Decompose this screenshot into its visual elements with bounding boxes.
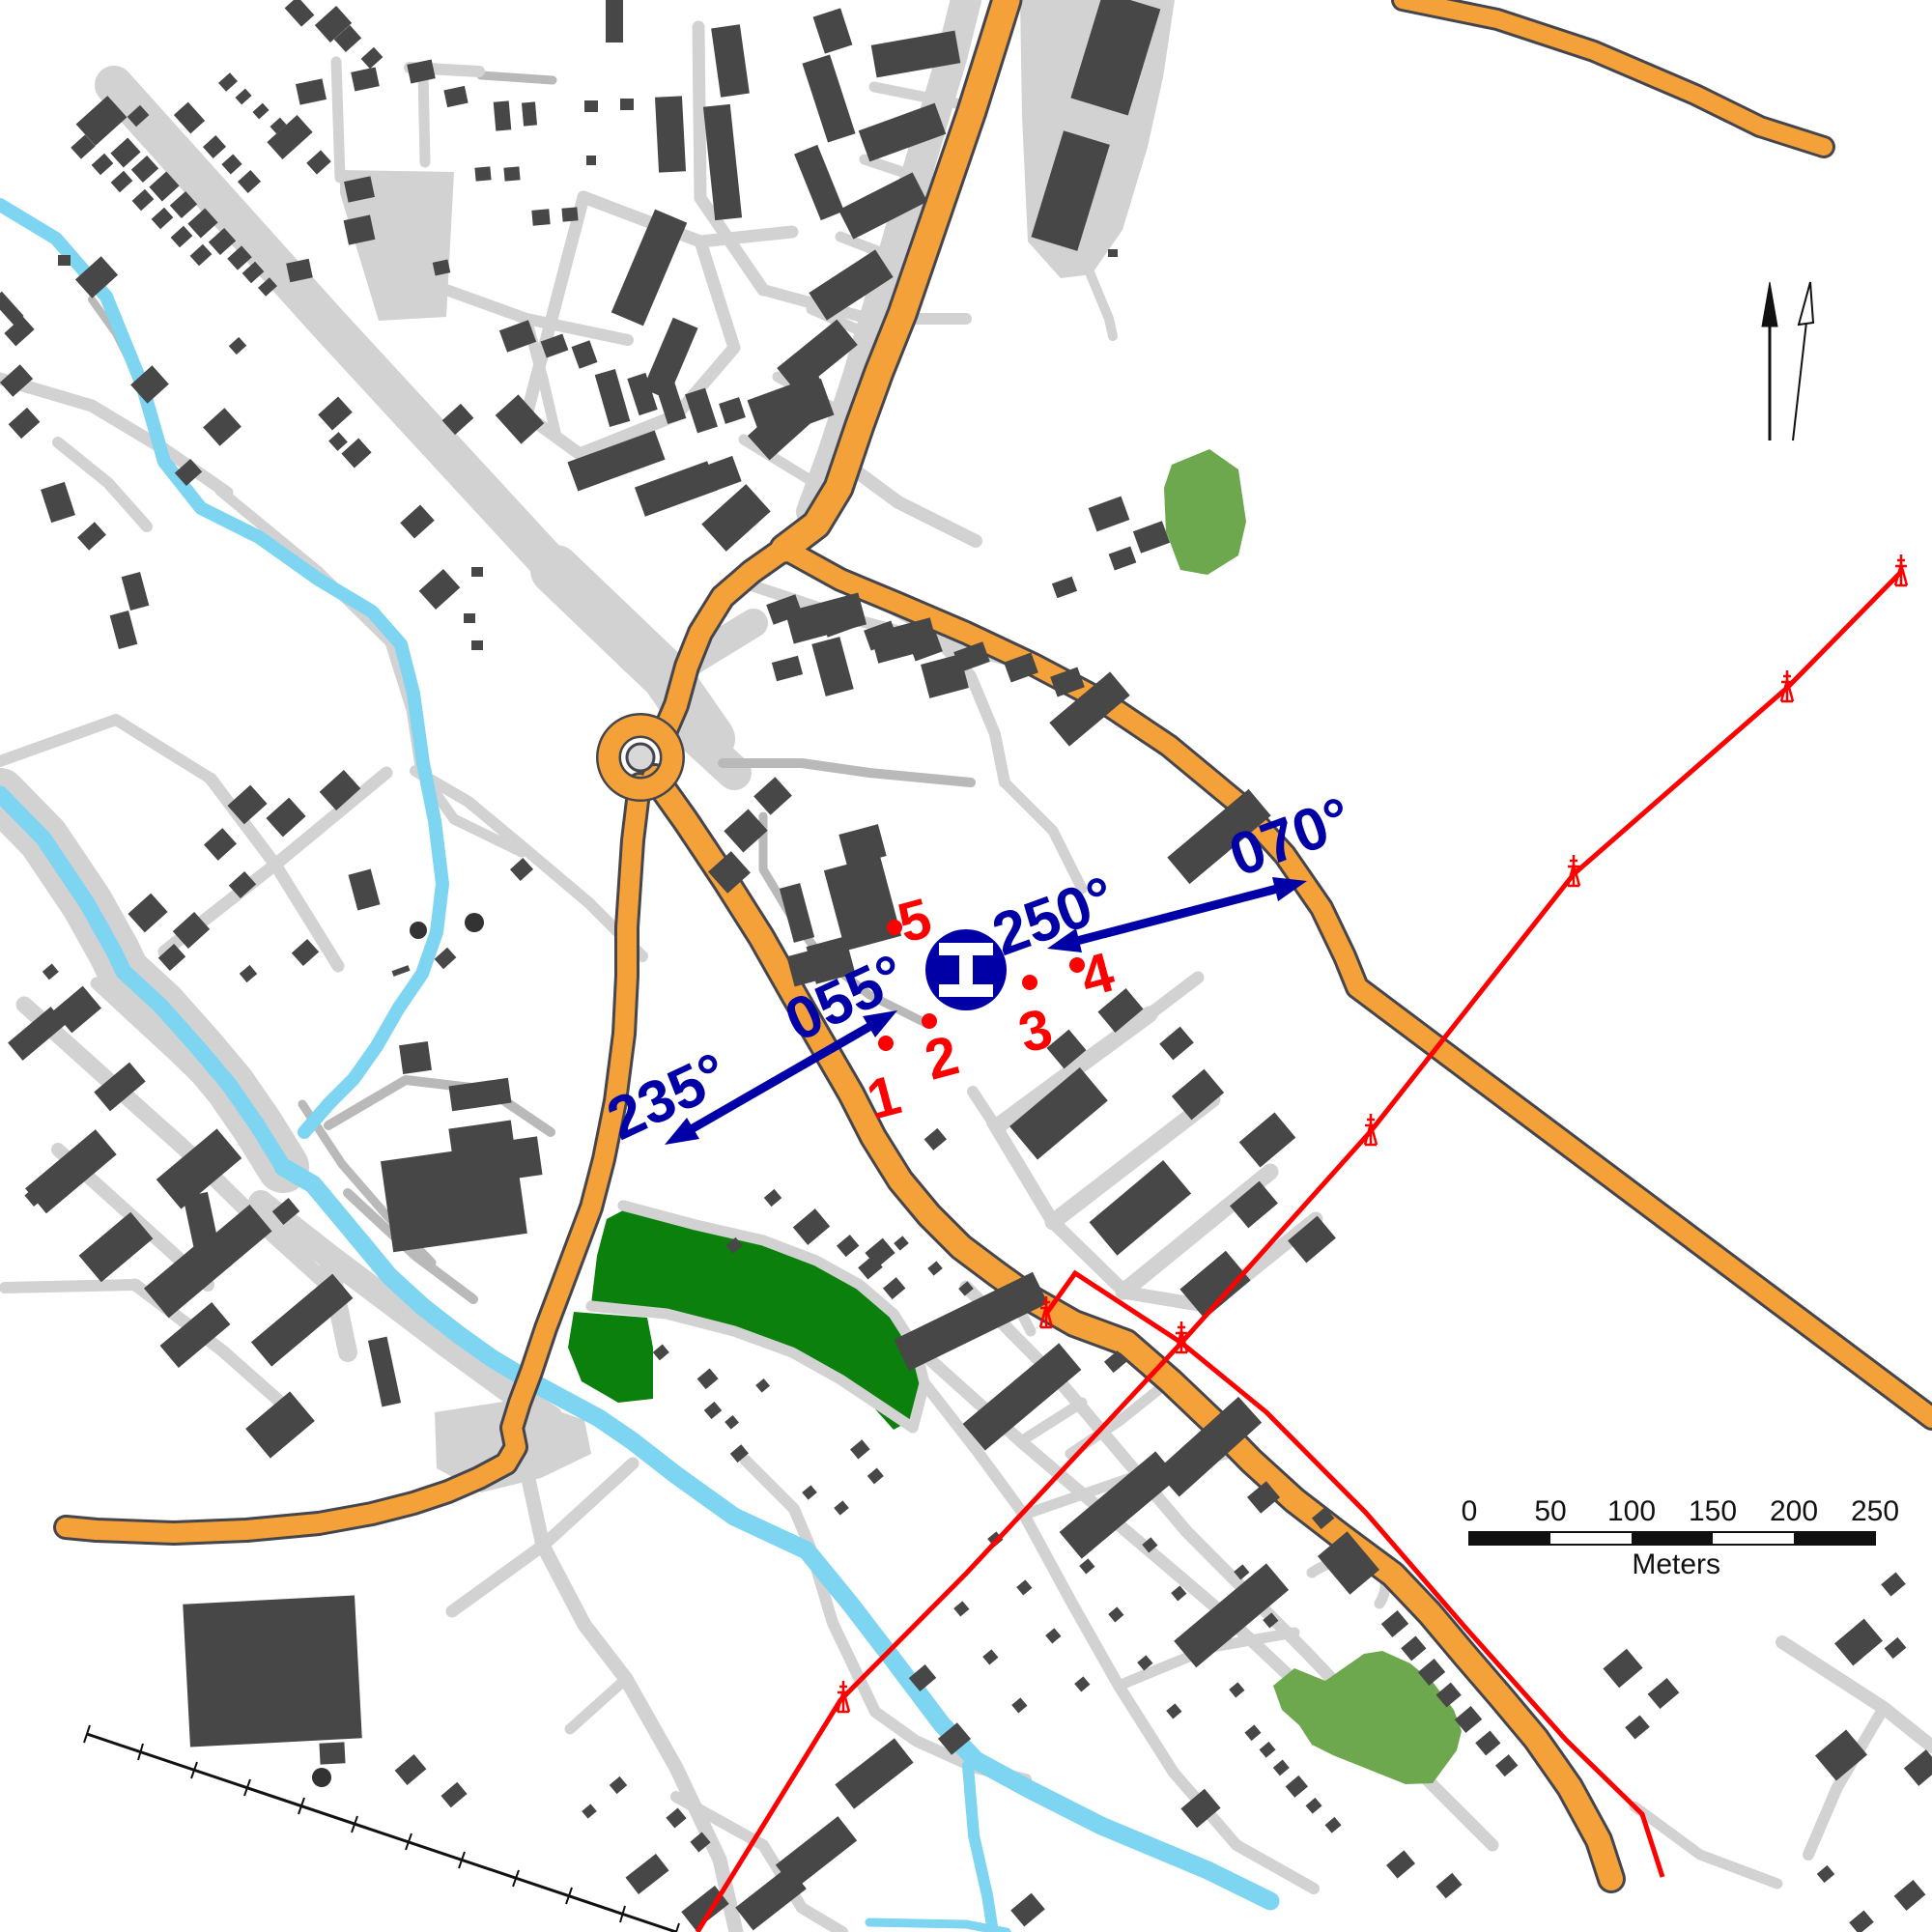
- svg-text:100: 100: [1607, 1495, 1656, 1527]
- svg-text:250: 250: [1851, 1495, 1899, 1527]
- svg-text:200: 200: [1770, 1495, 1818, 1527]
- svg-text:50: 50: [1534, 1495, 1566, 1527]
- svg-text:Meters: Meters: [1632, 1548, 1720, 1580]
- svg-text:150: 150: [1689, 1495, 1737, 1527]
- svg-text:0: 0: [1462, 1495, 1478, 1527]
